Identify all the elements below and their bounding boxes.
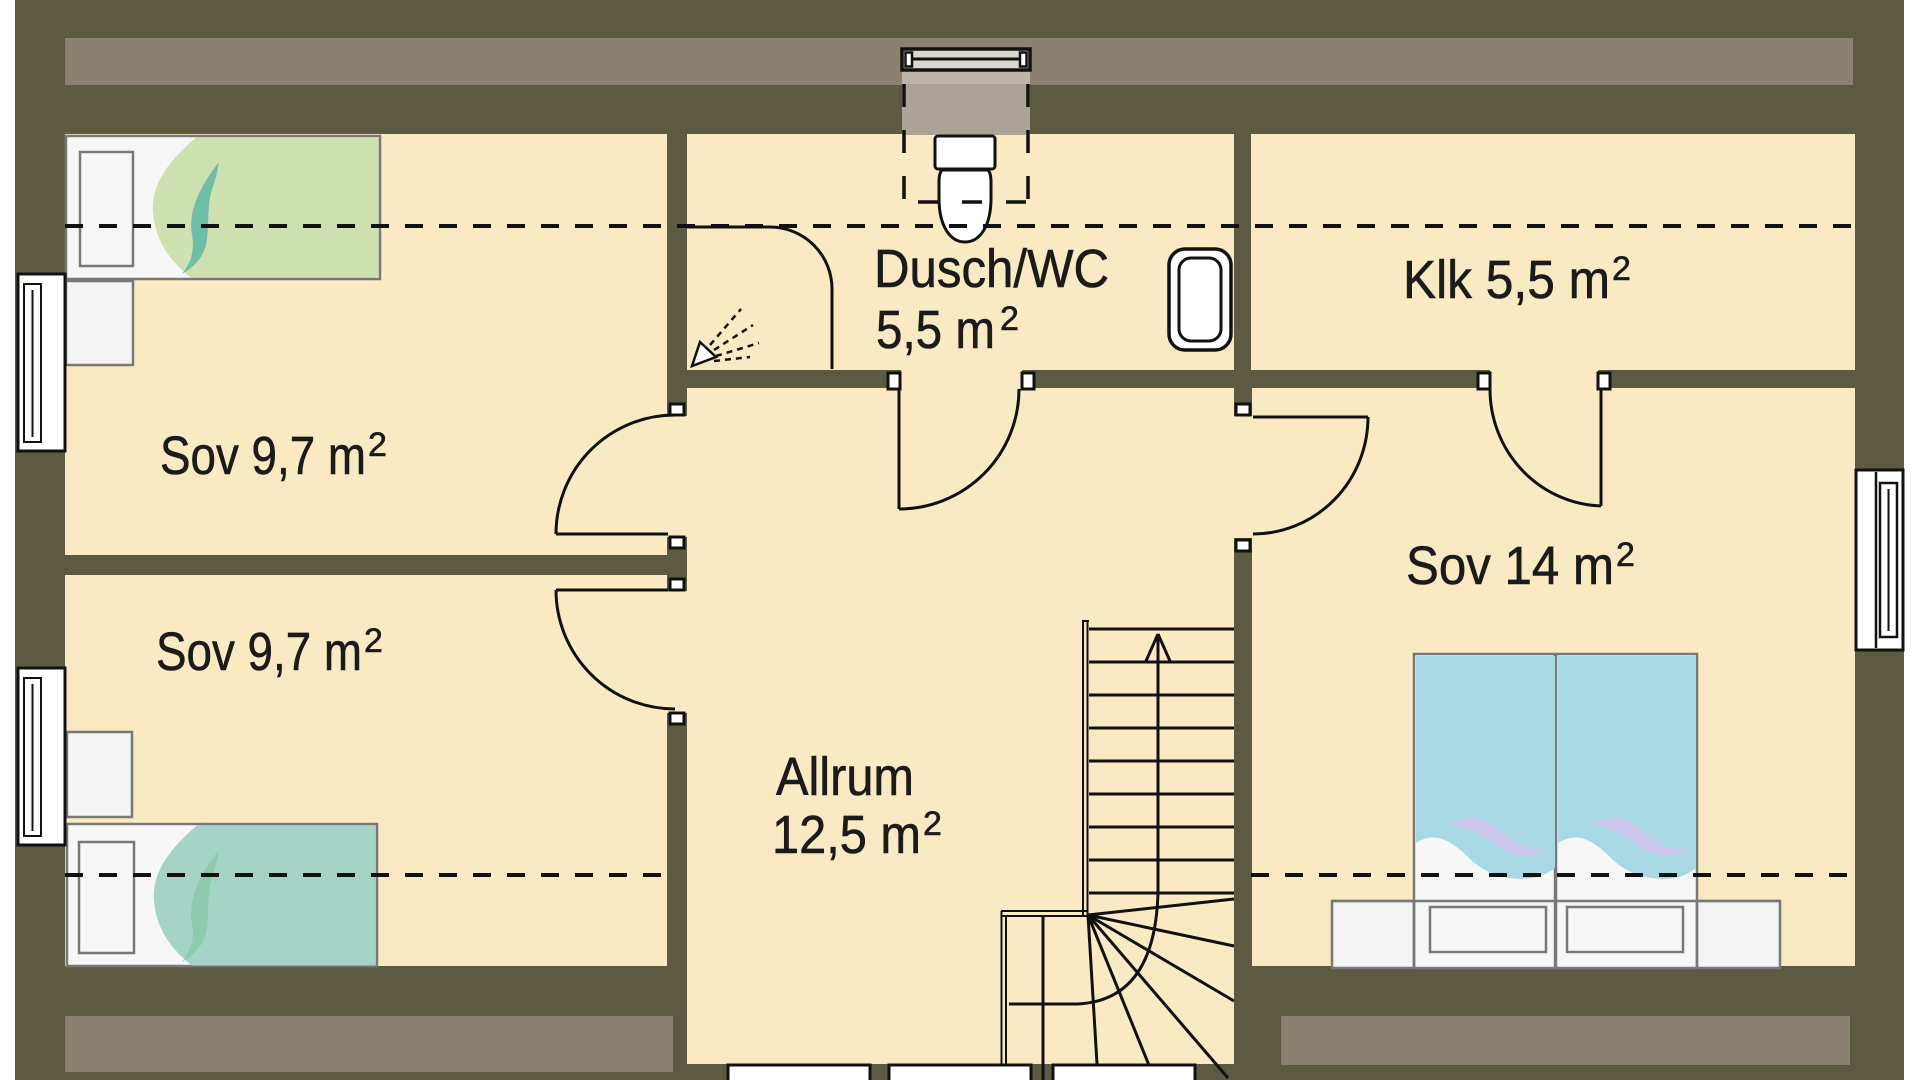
svg-text:Dusch/WC: Dusch/WC xyxy=(874,239,1109,299)
svg-text:2: 2 xyxy=(1616,536,1635,574)
svg-text:2: 2 xyxy=(1000,300,1019,338)
svg-text:Sov 9,7 m: Sov 9,7 m xyxy=(160,426,366,486)
svg-text:Sov 14 m: Sov 14 m xyxy=(1406,536,1614,596)
svg-text:2: 2 xyxy=(923,805,942,843)
svg-text:2: 2 xyxy=(364,622,383,660)
svg-text:Allrum: Allrum xyxy=(776,747,914,807)
svg-text:Klk 5,5 m: Klk 5,5 m xyxy=(1403,250,1610,310)
svg-text:Sov 9,7 m: Sov 9,7 m xyxy=(156,622,362,682)
svg-text:2: 2 xyxy=(1612,250,1631,288)
svg-text:5,5 m: 5,5 m xyxy=(876,300,995,360)
svg-text:2: 2 xyxy=(368,426,387,464)
svg-text:12,5 m: 12,5 m xyxy=(772,805,921,865)
